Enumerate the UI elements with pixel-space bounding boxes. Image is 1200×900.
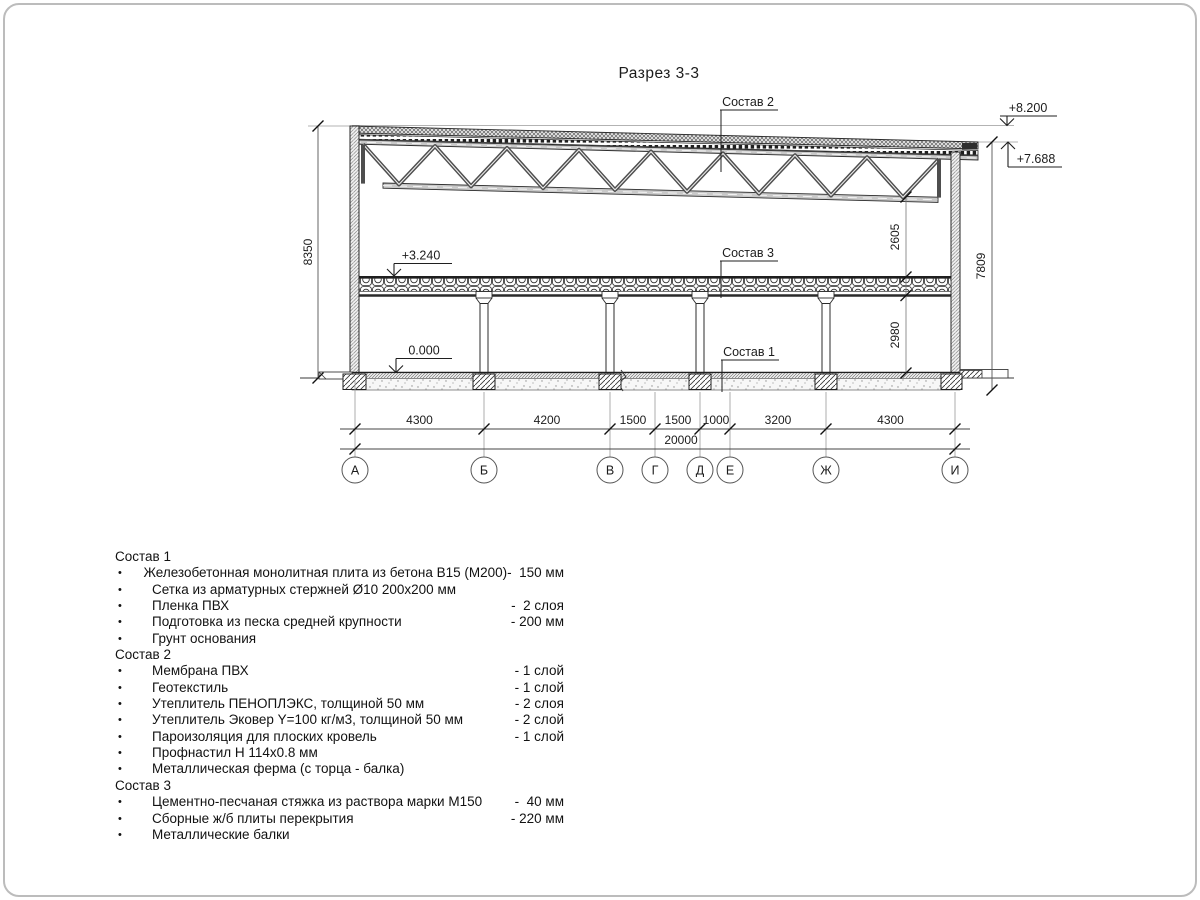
elevation-roof-high: +8.200 <box>1000 101 1057 126</box>
axis-bubbles: А Б В Г Д Е Ж И <box>342 457 968 483</box>
axis-letter: Е <box>726 464 734 478</box>
span-dim: 1500 <box>665 413 692 427</box>
legend-item: •Сетка из арматурных стержней Ø10 200x20… <box>115 582 564 598</box>
bullet-icon: • <box>115 794 152 810</box>
footing <box>473 374 495 390</box>
bullet-icon: • <box>115 680 152 696</box>
legend-item: •Цементно-песчаная стяжка из раствора ма… <box>115 794 564 810</box>
drawing-title: Разрез 3-3 <box>618 65 699 82</box>
bullet-icon: • <box>115 598 152 614</box>
legend-item: •Мембрана ПВХ- 1 слой <box>115 663 564 679</box>
bullet-icon: • <box>115 565 143 581</box>
legend-item: •Пароизоляция для плоских кровель- 1 сло… <box>115 729 564 745</box>
span-dim: 4300 <box>406 413 433 427</box>
dim-2605: 2605 <box>888 223 902 250</box>
legend-item: •Металлические балки <box>115 827 564 843</box>
footing <box>343 374 366 390</box>
axis-letter: А <box>351 464 360 478</box>
dim-8350: 8350 <box>301 238 315 265</box>
composition-legend: Состав 1 •Железобетонная монолитная плит… <box>115 549 564 843</box>
columns <box>476 292 834 374</box>
dim-7809: 7809 <box>974 252 988 279</box>
svg-text:Состав 1: Состав 1 <box>723 345 775 359</box>
span-dim: 1500 <box>620 413 647 427</box>
svg-text:0.000: 0.000 <box>408 344 439 358</box>
legend-item: •Утеплитель Эковер Y=100 кг/м3, толщиной… <box>115 712 564 728</box>
svg-text:+7.688: +7.688 <box>1017 152 1056 166</box>
dim-20000: 20000 <box>664 433 698 447</box>
dim-2980: 2980 <box>888 321 902 348</box>
left-wall <box>350 126 359 378</box>
legend-item: •Сборные ж/б плиты перекрытия- 220 мм <box>115 811 564 827</box>
legend-item: •Подготовка из песка средней крупности- … <box>115 614 564 630</box>
bullet-icon: • <box>115 696 152 712</box>
drawing-sheet: Разрез 3-3 <box>0 0 1200 900</box>
column <box>476 292 492 374</box>
bullet-icon: • <box>115 712 152 728</box>
legend-item: •Утеплитель ПЕНОПЛЭКС, толщиной 50 мм- 2… <box>115 696 564 712</box>
axis-extension-lines <box>355 380 955 457</box>
legend-section-title: Состав 2 <box>115 647 564 663</box>
legend-section-title: Состав 1 <box>115 549 564 565</box>
bullet-icon: • <box>115 811 152 827</box>
legend-item: •Геотекстиль- 1 слой <box>115 680 564 696</box>
right-wall <box>951 152 960 378</box>
roof-assembly <box>352 126 978 160</box>
axis-letter: И <box>951 464 960 478</box>
svg-text:+3.240: +3.240 <box>402 249 441 263</box>
axis-letter: Б <box>480 464 488 478</box>
axis-letter: Ж <box>820 464 832 478</box>
intermediate-floor <box>359 277 951 296</box>
column <box>692 292 708 374</box>
elevation-roof-low: +7.688 <box>1001 142 1062 167</box>
legend-item: •Пленка ПВХ- 2 слоя <box>115 598 564 614</box>
footing <box>815 374 837 390</box>
footing <box>941 374 962 390</box>
span-dim: 4200 <box>534 413 561 427</box>
hollow-core-slab <box>359 278 951 291</box>
roof-edge-cap <box>962 143 977 150</box>
span-dim: 3200 <box>765 413 792 427</box>
axis-letter: Д <box>696 464 705 478</box>
footing <box>689 374 711 390</box>
span-dim: 4300 <box>877 413 904 427</box>
bullet-icon: • <box>115 761 152 777</box>
footing <box>599 374 621 390</box>
svg-text:+8.200: +8.200 <box>1009 101 1048 115</box>
bullet-icon: • <box>115 745 152 761</box>
elevation-ground: 0.000 <box>389 344 452 373</box>
legend-item: •Металлическая ферма (с торца - балка) <box>115 761 564 777</box>
sand-bed <box>352 378 960 390</box>
column <box>818 292 834 374</box>
bullet-icon: • <box>115 614 152 630</box>
legend-item: •Профнастил Н 114х0.8 мм <box>115 745 564 761</box>
svg-text:Состав 3: Состав 3 <box>722 246 774 260</box>
span-dim: 1000 <box>703 413 730 427</box>
bullet-icon: • <box>115 582 152 598</box>
legend-item: •Грунт основания <box>115 631 564 647</box>
axis-letter: В <box>606 464 614 478</box>
axis-letter: Г <box>652 464 659 478</box>
bullet-icon: • <box>115 729 152 745</box>
column <box>602 292 618 374</box>
bullet-icon: • <box>115 631 152 647</box>
elevation-floor2: +3.240 <box>387 249 452 277</box>
legend-section-title: Состав 3 <box>115 778 564 794</box>
legend-item: •Железобетонная монолитная плита из бето… <box>115 565 564 581</box>
bullet-icon: • <box>115 827 152 843</box>
svg-text:Состав 2: Состав 2 <box>722 95 774 109</box>
section-drawing: Разрез 3-3 <box>0 0 1200 540</box>
bullet-icon: • <box>115 663 152 679</box>
